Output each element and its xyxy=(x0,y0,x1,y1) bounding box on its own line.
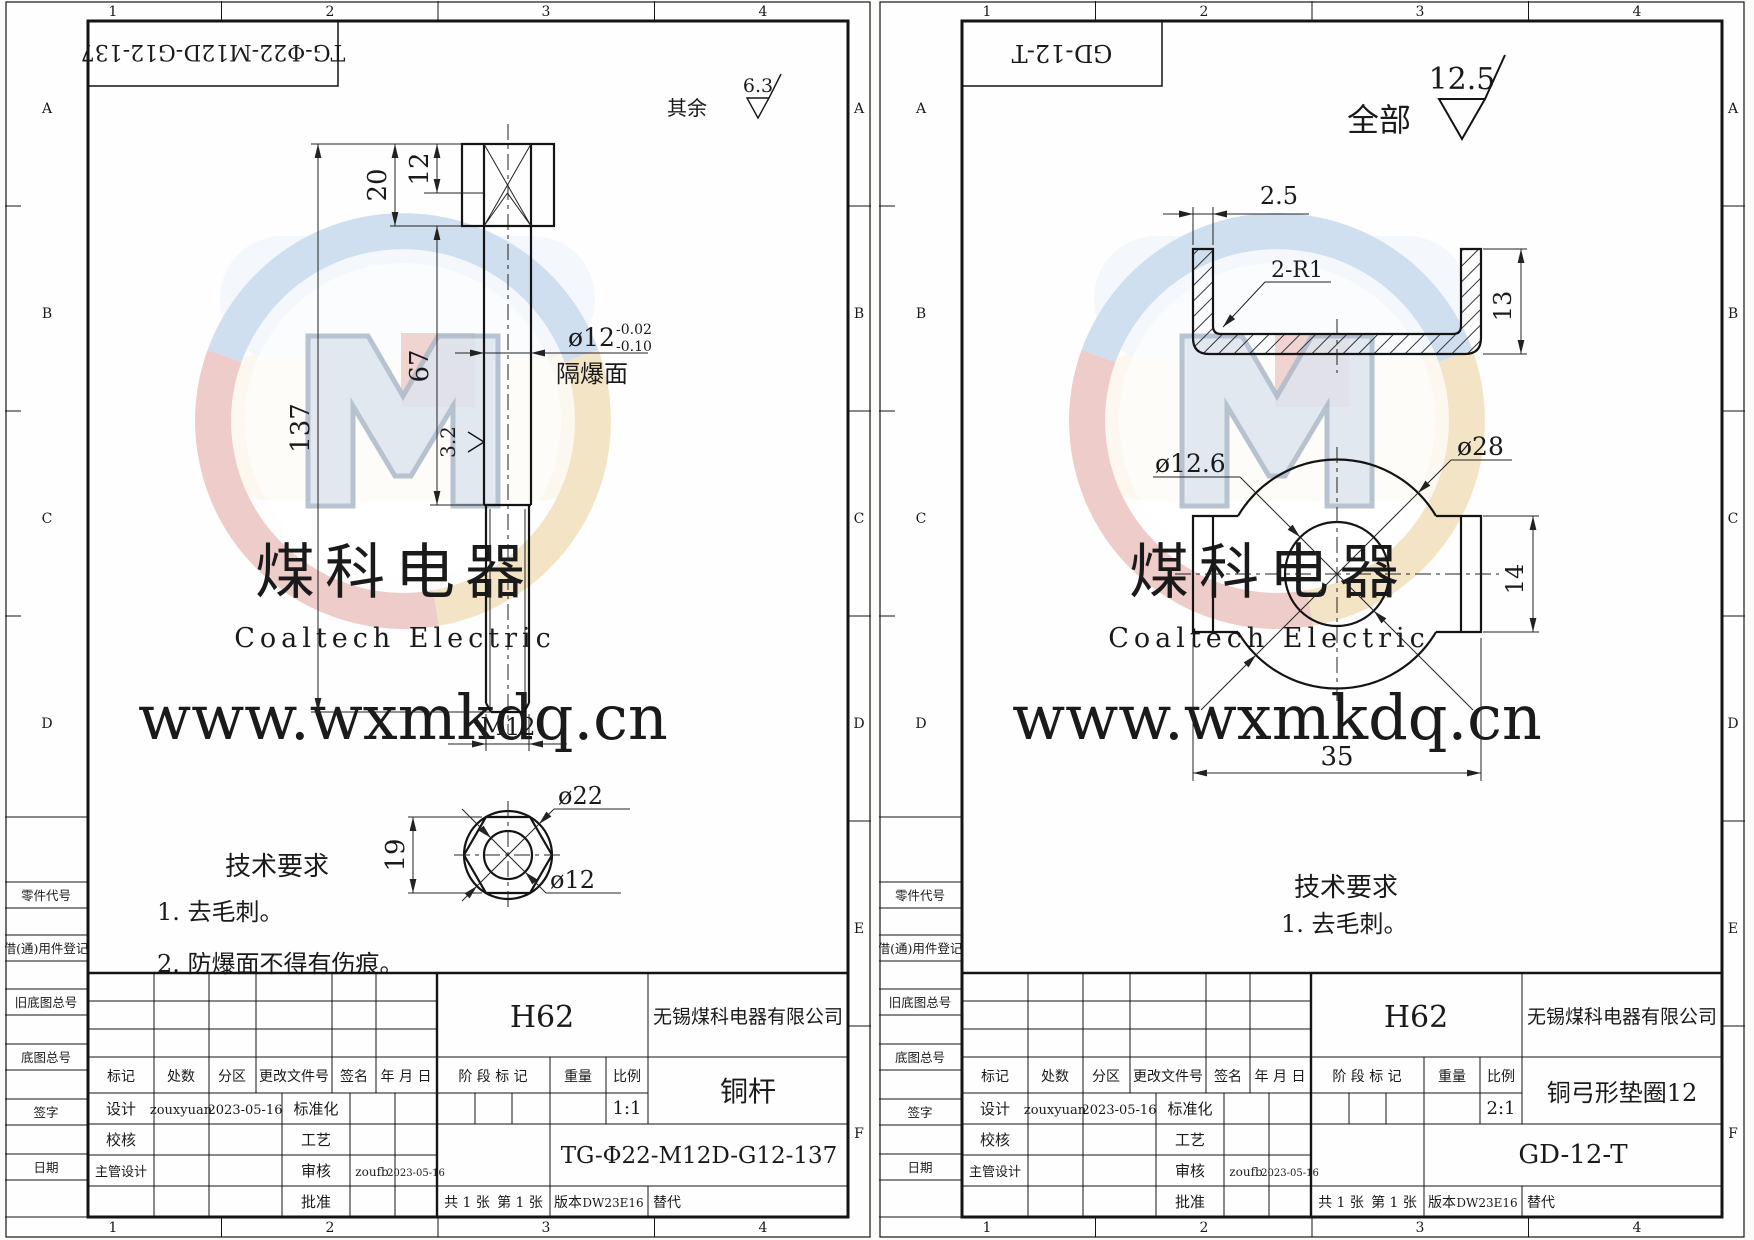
zone-row: B xyxy=(916,306,926,322)
margin-label: 签字 xyxy=(33,1105,58,1120)
tb-label-replace: 替代 xyxy=(1527,1195,1555,1211)
zone-col: 2 xyxy=(326,4,335,20)
tb-label-approve: 批准 xyxy=(301,1193,331,1211)
dim-hole-dia: ø12 xyxy=(550,866,595,894)
tech-req-item: 1. 去毛刺。 xyxy=(1281,910,1408,938)
tb-label-stage: 阶 段 标 记 xyxy=(458,1069,527,1085)
tb-label-date: 年 月 日 xyxy=(381,1069,432,1085)
zone-col: 1 xyxy=(109,4,118,20)
margin-label: 借(通)用件登记 xyxy=(879,941,963,956)
zone-row: D xyxy=(41,716,52,732)
tb-part-name: 铜弓形垫圈12 xyxy=(1547,1079,1698,1107)
tb-auditor: zoufb xyxy=(355,1165,389,1179)
tb-label-zone: 分区 xyxy=(1092,1069,1120,1085)
tb-label-change-doc: 更改文件号 xyxy=(1133,1069,1203,1085)
finish-prefix: 其余 xyxy=(667,96,707,120)
technical-requirements: 技术要求 1. 去毛刺。 xyxy=(1281,873,1408,938)
zone-col: 4 xyxy=(759,1220,768,1236)
watermark-brand-en: Coaltech Electric xyxy=(1108,623,1430,654)
tb-label-design: 设计 xyxy=(106,1100,136,1118)
dim-outer-dia: ø28 xyxy=(1457,432,1504,461)
flameproof-face-label: 隔爆面 xyxy=(556,360,628,388)
watermark-brand-cn: 煤科电器 xyxy=(255,538,535,608)
zone-row: B xyxy=(42,306,52,322)
tb-sheets: 共 1 张 xyxy=(444,1195,490,1211)
tb-label-version: 版本 xyxy=(554,1195,582,1211)
watermark-url: www.wxmkdq.cn xyxy=(1012,681,1542,754)
tb-sheets: 共 1 张 xyxy=(1318,1195,1364,1211)
tb-label-audit: 审核 xyxy=(301,1162,331,1180)
dim-tol-upper: -0.02 xyxy=(616,322,652,338)
zone-row: E xyxy=(854,921,864,937)
margin-label: 日期 xyxy=(33,1160,58,1175)
zone-col: 1 xyxy=(983,4,992,20)
sheet-copper-washer: 煤科电器 Coaltech Electric www.wxmkdq.cn 1 2… xyxy=(879,1,1745,1238)
tb-version-value: DW23E16 xyxy=(582,1196,643,1210)
tb-company: 无锡煤科电器有限公司 xyxy=(1527,1006,1717,1028)
tb-design-date: 2023-05-16 xyxy=(208,1103,283,1118)
tb-label-mark: 标记 xyxy=(107,1069,135,1085)
zone-row: D xyxy=(1727,716,1738,732)
tb-label-replace: 替代 xyxy=(653,1195,681,1211)
tb-material: H62 xyxy=(1384,1000,1448,1035)
tb-label-zone: 分区 xyxy=(218,1069,246,1085)
finish-note: 其余 6.3 xyxy=(667,74,781,120)
zone-row: A xyxy=(915,101,927,117)
tb-label-process: 工艺 xyxy=(301,1131,331,1149)
margin-label: 借(通)用件登记 xyxy=(5,941,89,956)
finish-prefix: 全部 xyxy=(1347,101,1411,139)
tb-label-sign: 签名 xyxy=(340,1068,368,1085)
technical-requirements: 技术要求 1. 去毛刺。 2. 防爆面不得有伤痕。 xyxy=(157,852,404,978)
tech-req-title: 技术要求 xyxy=(225,852,329,882)
tb-label-count: 处数 xyxy=(1041,1069,1069,1085)
tb-label-scale: 比例 xyxy=(613,1069,641,1085)
tb-auditor: zoufb xyxy=(1229,1165,1263,1179)
zone-col: 4 xyxy=(1633,4,1642,20)
finish-value: 12.5 xyxy=(1429,62,1496,97)
tb-sheet-no: 第 1 张 xyxy=(497,1194,543,1211)
margin-label: 零件代号 xyxy=(21,888,71,903)
tb-scale-value: 1:1 xyxy=(613,1098,642,1119)
roughness-value: 3.2 xyxy=(436,426,460,458)
tb-design-date: 2023-05-16 xyxy=(1082,1103,1157,1118)
tb-label-stage: 阶 段 标 记 xyxy=(1332,1069,1401,1085)
doc-number-box: GD-12-T xyxy=(962,21,1162,86)
dim-hole-dia: ø12.6 xyxy=(1155,449,1226,478)
bolt-top-view: 19 ø22 ø12 xyxy=(381,782,630,909)
zone-col: 2 xyxy=(326,1220,335,1236)
dim-radius: 2-R1 xyxy=(1271,258,1323,283)
tb-label-weight: 重量 xyxy=(564,1069,592,1085)
zone-row: C xyxy=(916,511,927,527)
zone-row: F xyxy=(1728,1126,1738,1142)
zone-row: C xyxy=(42,511,53,527)
finish-value: 6.3 xyxy=(743,75,773,97)
zone-row: A xyxy=(1727,101,1739,117)
dim-thickness: 2.5 xyxy=(1260,182,1298,210)
tb-label-design: 设计 xyxy=(980,1100,1010,1118)
tb-scale-value: 2:1 xyxy=(1487,1098,1516,1119)
tb-label-sign: 签名 xyxy=(1214,1068,1242,1085)
margin-label: 底图总号 xyxy=(21,1050,71,1065)
tech-req-item: 1. 去毛刺。 xyxy=(157,898,284,926)
tb-label-scale: 比例 xyxy=(1487,1069,1515,1085)
zone-col: 1 xyxy=(983,1220,992,1236)
margin-label: 签字 xyxy=(907,1105,932,1120)
tb-version-value: DW23E16 xyxy=(1456,1196,1517,1210)
watermark-url: www.wxmkdq.cn xyxy=(138,681,668,754)
dim-total-length: 137 xyxy=(286,403,316,453)
dim-knurl-height: 12 xyxy=(405,152,435,185)
zone-row: C xyxy=(854,511,865,527)
sheet-copper-rod: 煤科电器 Coaltech Electric www.wxmkdq.cn 1 2… xyxy=(5,1,871,1238)
tb-label-date: 年 月 日 xyxy=(1255,1069,1306,1085)
dim-shank-length: 67 xyxy=(405,349,435,382)
tb-material: H62 xyxy=(510,1000,574,1035)
margin-label-boxes: 零件代号 借(通)用件登记 旧底图总号 底图总号 签字 日期 xyxy=(5,817,89,1180)
tb-label-version: 版本 xyxy=(1428,1195,1456,1211)
tb-label-check: 校核 xyxy=(980,1131,1010,1149)
zone-row: F xyxy=(854,1126,864,1142)
zone-row: E xyxy=(1728,921,1738,937)
tb-label-approve: 批准 xyxy=(1175,1193,1205,1211)
dim-width: 35 xyxy=(1320,742,1353,772)
tb-label-audit: 审核 xyxy=(1175,1162,1205,1180)
zone-col: 3 xyxy=(542,4,551,20)
margin-label: 旧底图总号 xyxy=(889,995,952,1010)
zone-col: 4 xyxy=(759,4,768,20)
title-block: 标记 处数 分区 更改文件号 签名 年 月 日 设计 zouxyuan 2023… xyxy=(88,973,848,1217)
zone-col: 3 xyxy=(542,1220,551,1236)
dim-tab-height: 14 xyxy=(1501,564,1529,595)
title-block: 标记 处数 分区 更改文件号 签名 年 月 日 设计 zouxyuan 2023… xyxy=(962,973,1722,1217)
tb-drawing-number: TG-Φ22-M12D-G12-137 xyxy=(561,1143,838,1169)
zone-col: 2 xyxy=(1200,1220,1209,1236)
tech-req-title: 技术要求 xyxy=(1294,873,1398,903)
dim-tol-lower: -0.10 xyxy=(616,339,652,355)
drawing-page: 煤科电器 Coaltech Electric www.wxmkdq.cn 1 2… xyxy=(0,0,1754,1240)
zone-row: A xyxy=(41,101,53,117)
doc-number-inverted: GD-12-T xyxy=(1012,39,1113,67)
dim-flange-height: 13 xyxy=(1489,291,1517,322)
finish-note: 全部 12.5 xyxy=(1347,55,1505,139)
zone-col: 1 xyxy=(109,1220,118,1236)
doc-number-inverted: TG-Φ22-M12D-G12-137 xyxy=(81,39,346,64)
doc-number-box: TG-Φ22-M12D-G12-137 xyxy=(81,21,346,86)
tb-audit-date: 2023-05-16 xyxy=(1261,1168,1319,1179)
zone-col: 3 xyxy=(1416,1220,1425,1236)
tb-label-count: 处数 xyxy=(167,1069,195,1085)
tb-label-standard: 标准化 xyxy=(293,1100,338,1118)
dim-shank-dia: ø12 xyxy=(568,323,615,352)
tb-audit-date: 2023-05-16 xyxy=(387,1168,445,1179)
tb-sheet-no: 第 1 张 xyxy=(1371,1194,1417,1211)
tb-label-chief-design: 主管设计 xyxy=(969,1165,1021,1180)
tb-drawing-number: GD-12-T xyxy=(1518,1140,1628,1170)
tb-label-change-doc: 更改文件号 xyxy=(259,1069,329,1085)
tb-label-mark: 标记 xyxy=(981,1069,1009,1085)
tb-designer: zouxyuan xyxy=(1024,1103,1087,1118)
margin-label-boxes: 零件代号 借(通)用件登记 旧底图总号 底图总号 签字 日期 xyxy=(879,817,963,1180)
margin-label: 旧底图总号 xyxy=(15,995,78,1010)
tb-company: 无锡煤科电器有限公司 xyxy=(653,1006,843,1028)
tb-designer: zouxyuan xyxy=(150,1103,213,1118)
dim-head-dia: ø22 xyxy=(558,782,603,810)
zone-col: 4 xyxy=(1633,1220,1642,1236)
tb-part-name: 铜杆 xyxy=(720,1075,776,1108)
thread-label: M12 xyxy=(480,713,535,741)
zone-row: C xyxy=(1728,511,1739,527)
zone-col: 2 xyxy=(1200,4,1209,20)
margin-label: 日期 xyxy=(907,1160,932,1175)
zone-row: D xyxy=(853,716,864,732)
zone-row: B xyxy=(1728,306,1738,322)
watermark-brand-cn: 煤科电器 xyxy=(1129,538,1409,608)
zone-col: 3 xyxy=(1416,4,1425,20)
zone-row: A xyxy=(853,101,865,117)
tb-label-standard: 标准化 xyxy=(1167,1100,1212,1118)
tb-label-check: 校核 xyxy=(106,1131,136,1149)
tb-label-chief-design: 主管设计 xyxy=(95,1165,147,1180)
margin-label: 零件代号 xyxy=(895,888,945,903)
zone-row: B xyxy=(854,306,864,322)
zone-row: D xyxy=(915,716,926,732)
dim-across-flats: 19 xyxy=(381,838,411,871)
margin-label: 底图总号 xyxy=(895,1050,945,1065)
tb-label-weight: 重量 xyxy=(1438,1069,1466,1085)
tb-label-process: 工艺 xyxy=(1175,1131,1205,1149)
dim-head-height: 20 xyxy=(363,168,393,201)
